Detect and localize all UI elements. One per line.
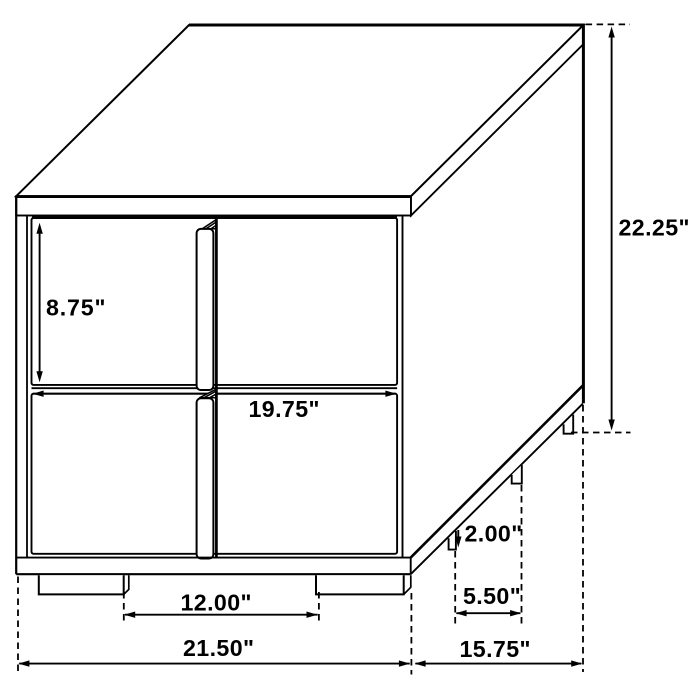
- svg-text:21.50": 21.50": [183, 635, 254, 661]
- svg-text:12.00": 12.00": [181, 590, 252, 616]
- svg-text:8.75": 8.75": [46, 295, 106, 321]
- svg-text:15.75": 15.75": [460, 636, 531, 662]
- svg-text:19.75": 19.75": [249, 396, 320, 422]
- svg-text:5.50": 5.50": [463, 583, 521, 609]
- svg-text:2.00": 2.00": [465, 521, 523, 547]
- svg-text:22.25": 22.25": [619, 215, 690, 241]
